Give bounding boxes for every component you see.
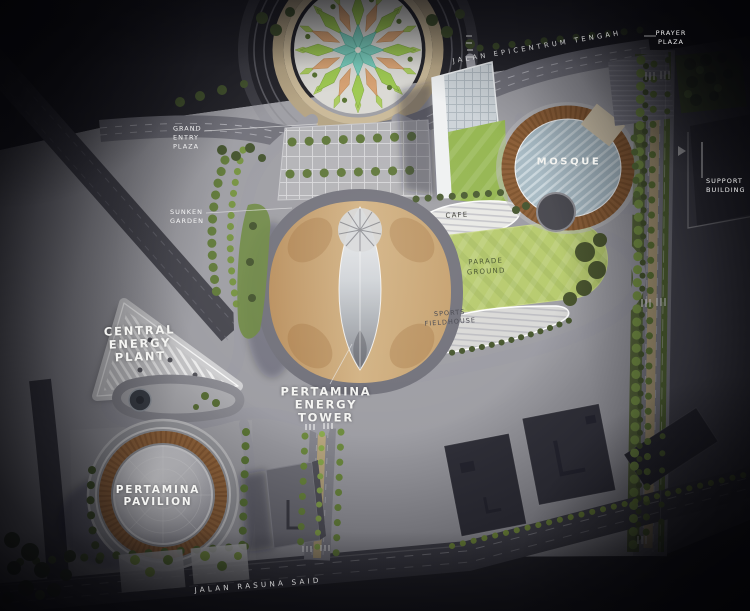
- label-pertamina-pavilion: PERTAMINA PAVILION: [116, 484, 200, 508]
- label-cafe: CAFE: [445, 211, 468, 222]
- label-sports-fieldhouse: SPORTS FIELDHOUSE: [424, 307, 477, 329]
- label-line: TOWER: [281, 412, 372, 425]
- label-line: PLANT: [105, 349, 177, 364]
- label-line: PAVILION: [116, 496, 200, 508]
- label-line: GARDEN: [170, 217, 204, 226]
- label-parade-ground: PARADE GROUND: [466, 256, 506, 277]
- label-pertamina-energy-tower: PERTAMINA ENERGY TOWER: [281, 386, 372, 425]
- label-line: PERTAMINA: [116, 484, 200, 496]
- label-prayer-plaza: PRAYER PLAZA: [656, 29, 687, 47]
- dropoff-loop: [117, 379, 240, 418]
- label-line: PRAYER: [656, 29, 687, 38]
- south-office-building: [240, 460, 326, 552]
- label-central-energy-plant: CENTRAL ENERGY PLANT: [104, 323, 177, 364]
- label-line: BUILDING: [706, 186, 746, 195]
- label-line: SUPPORT: [706, 177, 746, 186]
- sail-building-shadow: [398, 82, 436, 196]
- label-mosque: MOSQUE: [537, 157, 602, 168]
- label-line: PLAZA: [173, 143, 202, 152]
- label-line: SUNKEN: [170, 208, 204, 217]
- label-grand-entry-plaza: GRAND ENTRY PLAZA: [173, 125, 202, 152]
- site-plan-graphics: [0, 0, 750, 611]
- label-line: ENTRY: [173, 134, 202, 143]
- label-support-building: SUPPORT BUILDING: [706, 177, 746, 195]
- label-sunken-garden: SUNKEN GARDEN: [170, 208, 204, 226]
- mosque-court-circle: [537, 193, 575, 231]
- label-line: GRAND: [173, 125, 202, 134]
- label-line: PLAZA: [656, 38, 687, 47]
- energy-tower-block: [244, 195, 457, 389]
- site-plan-rendering: JALAN EPICENTRUM TENGAH JALAN RASUNA SAI…: [0, 0, 750, 611]
- label-line: GROUND: [467, 266, 506, 278]
